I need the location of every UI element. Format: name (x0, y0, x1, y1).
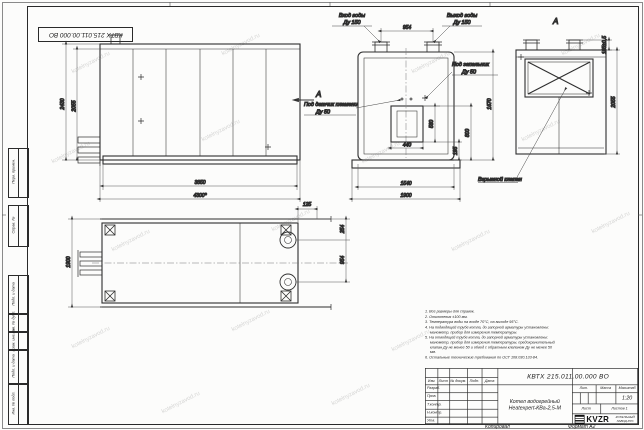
rear-flange-stubs (523, 40, 583, 50)
col-doc: № докум. (449, 377, 467, 384)
water-inlet-label: Вход воды Ду 150 (332, 13, 380, 42)
row-tkontr: Т.контр. (426, 400, 450, 409)
note-item: 4. На подводящей трубе котла, до запорно… (425, 326, 556, 336)
frame-zone-ticks (2, 2, 642, 215)
svg-text:Взрывной клапан: Взрывной клапан (478, 176, 522, 183)
svg-text:Под датчик пламени: Под датчик пламени (304, 102, 357, 108)
drawing-sheet: kotelnyzavod.ru kotelnyzavod.ru kotelnyz… (0, 0, 644, 430)
igniter-hole (401, 95, 428, 101)
dim-rear-height: 2055 (611, 96, 617, 108)
dim-plan-offset: 125 (303, 202, 312, 208)
svg-text:Под запальник: Под запальник (452, 62, 490, 68)
burner-opening (391, 106, 423, 142)
col-data: Дата (482, 377, 498, 384)
list-label: Лист (572, 404, 600, 414)
dim-base-height: 195 (453, 147, 459, 156)
note-item: 2. Отклонения ±100 мм. (425, 315, 556, 320)
dim-rear-flange-offset: 185±0,5 (602, 36, 608, 54)
svg-text:Ду 50: Ду 50 (461, 70, 476, 76)
format-label: Формат А2 (568, 424, 595, 430)
dim-front-width-overall: 1900 (400, 193, 411, 199)
dim-side-height-body: 2055 (72, 100, 78, 112)
view-direction-arrow-a: А (298, 90, 321, 100)
listov-label: Листов 1 (600, 404, 638, 414)
svg-text:Ду 50: Ду 50 (315, 110, 330, 116)
svg-text:Вход воды: Вход воды (339, 13, 365, 19)
dim-opening-elevation: 800 (465, 129, 471, 138)
plan-burner-bracket (78, 250, 102, 277)
svg-text:А: А (315, 90, 321, 99)
svg-text:Ду 150: Ду 150 (342, 20, 360, 26)
dim-opening-height: 560 (429, 120, 435, 129)
top-view: 1900 125 254 954 (66, 202, 350, 310)
masshtab-header: Масштаб (616, 384, 639, 392)
title-block: КВТХ 215.011.00.000 ВО Котел водогрейный… (425, 368, 638, 424)
col-list: Лист (438, 377, 450, 384)
dim-side-height-overall: 2430 (60, 98, 66, 110)
scale-value: 1:20 (616, 392, 639, 403)
side-view: 2430 2055 3850 4300* (60, 35, 300, 202)
note-item: 3. Температура воды на входе 70°С, на вы… (425, 321, 556, 326)
massa-header: Масса (596, 384, 616, 392)
burner-bracket (78, 133, 100, 166)
title-doc-number: КВТХ 215.011.00.000 ВО (498, 369, 639, 385)
dim-plan-edge-to-flange: 254 (340, 225, 346, 235)
company-name: КОТЕЛЬНЫЙ ЗАВОД.РУС (612, 413, 639, 424)
row-prov: Пров. (426, 392, 450, 400)
water-inlet-flange (372, 42, 390, 52)
plan-flanges (280, 232, 296, 290)
note-item: 5. На отводящей трубе котла, до запорной… (425, 336, 556, 355)
dim-side-length-body: 3850 (194, 180, 205, 186)
drawing-canvas: 2430 2055 3850 4300* (0, 0, 644, 430)
col-izm: Изм. (426, 377, 438, 384)
note-item: 1. Все размеры для справок. (425, 310, 556, 315)
row-nkontr: Н.контр. (426, 409, 450, 417)
dim-front-height: 1670 (487, 98, 493, 109)
dim-plan-width: 1900 (66, 256, 72, 267)
water-outlet-flange (424, 42, 442, 52)
note-item: 6. Остальные технические требования по О… (425, 356, 556, 361)
row-utv: Утв. (426, 417, 450, 425)
dim-flange-span: 954 (403, 25, 412, 31)
technical-notes: 1. Все размеры для справок. 2. Отклонени… (425, 310, 556, 361)
lit-header: Лит. (572, 384, 596, 392)
row-razrab: Разраб. (426, 384, 450, 392)
copied-label: Копировал (485, 424, 510, 430)
explosion-valve-panel (525, 59, 593, 97)
product-name: Котел водогрейный Heatexpert-КВа-2,5-М (498, 384, 573, 424)
dim-side-length-overall: 4300* (193, 193, 207, 199)
flame-sensor-label: Под датчик пламени Ду 50 (304, 100, 400, 116)
front-view: 954 560 440 195 800 1670 1540 1900 Вход … (298, 13, 498, 202)
view-a: А 185±0,5 2055 Взрывной клапан (478, 17, 620, 183)
svg-text:Выход воды: Выход воды (447, 13, 477, 19)
dim-front-width-body: 1540 (400, 181, 411, 187)
col-podp: Подп. (467, 377, 482, 384)
view-a-title: А (552, 17, 558, 26)
igniter-label: Под запальник Ду 50 (426, 62, 498, 98)
svg-text:Ду 150: Ду 150 (452, 20, 470, 26)
datum-cross-marks (138, 74, 271, 150)
water-outlet-label: Выход воды Ду 150 (434, 13, 482, 42)
dim-plan-flange-span: 954 (340, 256, 346, 265)
dim-opening-width: 440 (403, 143, 412, 149)
